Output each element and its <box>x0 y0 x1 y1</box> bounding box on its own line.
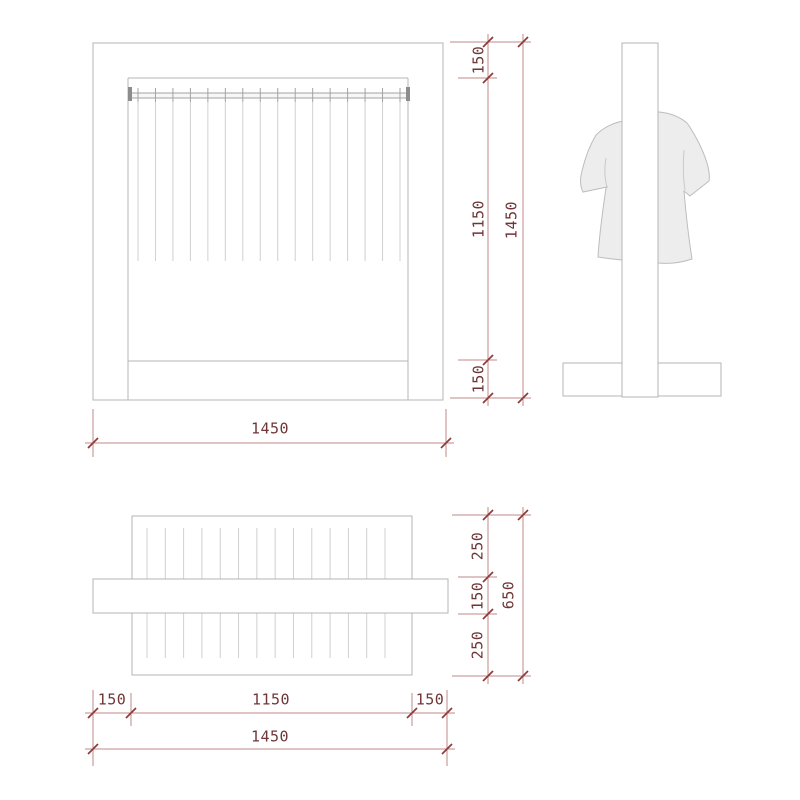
dim-label-plan-width-left-150: 150 <box>98 693 127 708</box>
side-view-post <box>622 43 658 397</box>
dim-label-front-width-overall: 1450 <box>251 422 289 437</box>
dim-label-plan-width-mid-1150: 1150 <box>252 693 290 708</box>
dim-label-front-middle-1150: 1150 <box>472 200 487 238</box>
technical-drawing-canvas: 150 1150 150 1450 1450 250 150 250 650 1… <box>0 0 800 800</box>
front-hanging-lines <box>138 102 400 261</box>
dimension-lines-plan-depth <box>452 507 531 684</box>
dim-label-plan-width-right-150: 150 <box>416 693 445 708</box>
plan-hanging-lines-top <box>147 528 385 579</box>
side-view <box>563 43 721 397</box>
dim-label-front-bottom-150: 150 <box>472 365 487 394</box>
dim-label-plan-depth-bottom-250: 250 <box>471 631 486 660</box>
dim-label-front-height-overall: 1450 <box>505 201 520 239</box>
dim-label-plan-depth-mid-150: 150 <box>471 582 486 611</box>
dim-label-plan-width-overall: 1450 <box>251 730 289 745</box>
plan-hanging-lines-bottom <box>147 613 385 658</box>
plan-view-rail-beam <box>93 579 448 613</box>
dim-label-front-top-150: 150 <box>472 46 487 75</box>
dim-label-plan-depth-top-250: 250 <box>471 532 486 561</box>
dim-label-plan-depth-overall: 650 <box>502 581 517 610</box>
hanger-rail <box>128 87 410 101</box>
drawing-linework <box>0 0 800 800</box>
